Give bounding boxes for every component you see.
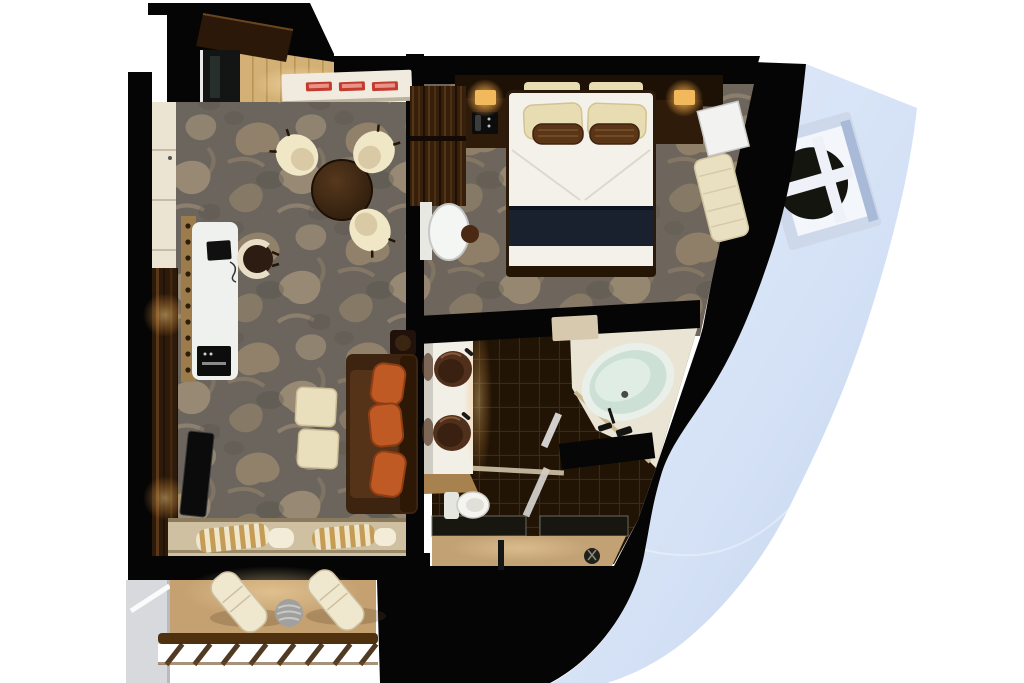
curtain-roll [268,528,294,548]
orange-cushion [369,450,407,498]
living-room [143,102,418,556]
mirror-reflection [422,353,434,381]
orange-cushion [369,362,406,406]
bed-footboard [506,266,656,277]
printer-slot [202,362,226,365]
privacy-partition [126,580,170,683]
floorplan-svg [0,0,1024,683]
wall-light-glow [143,293,187,337]
partition-edge [167,580,170,683]
balcony-railing [158,633,378,666]
printer [197,346,231,376]
red-tray-inner [375,83,395,88]
mirror-strip [424,330,433,474]
sofa [346,354,418,514]
runner-edge [509,206,653,210]
red-tray-inner [342,83,362,88]
writing-desk [192,222,238,380]
dresser-divider [410,136,466,141]
mirror-closet-edge [200,50,203,104]
king-bed [506,90,656,277]
mirror-reflection [210,56,220,98]
bed-runner [509,206,653,246]
balcony-round-table [275,599,303,627]
laptop [206,240,231,261]
toilet-seat [466,498,484,512]
mirror-closet [202,50,240,104]
sill-track [168,518,406,522]
telephone-key [488,118,491,121]
orange-cushions [368,362,407,498]
floorplan-image [0,0,1024,683]
telephone-receiver [475,115,481,131]
printer-button [210,353,213,356]
bolster-pillow [533,124,583,144]
ottoman [295,387,337,427]
curtain-roll [374,528,396,546]
shower-column [498,540,504,570]
toilet [444,492,489,519]
bedroom [410,75,754,336]
telephone-key [488,125,491,128]
bedside-lamp [674,90,695,105]
vanity-glow [464,320,492,480]
side-table [390,330,416,356]
rail-top [158,633,378,644]
shower-glass-door [540,516,628,536]
dresser [410,86,466,206]
ottoman [297,429,339,469]
shower-light [450,534,590,562]
closet-handle [168,156,172,160]
red-tray-inner [309,84,329,89]
bathroom-door-threshold [551,315,598,341]
shower-glass-door [432,516,526,536]
vanity-stool [461,225,479,243]
double-vanity [422,320,492,480]
printer-button [204,353,207,356]
bedside-lamp [475,90,496,105]
closet-doors [152,102,176,268]
console-counter [281,70,412,106]
orange-cushion [368,402,404,447]
bolster-pillow [590,124,639,144]
mirror-reflection [422,418,434,446]
rail-base [158,662,378,665]
sliding-door-sill [168,518,406,556]
